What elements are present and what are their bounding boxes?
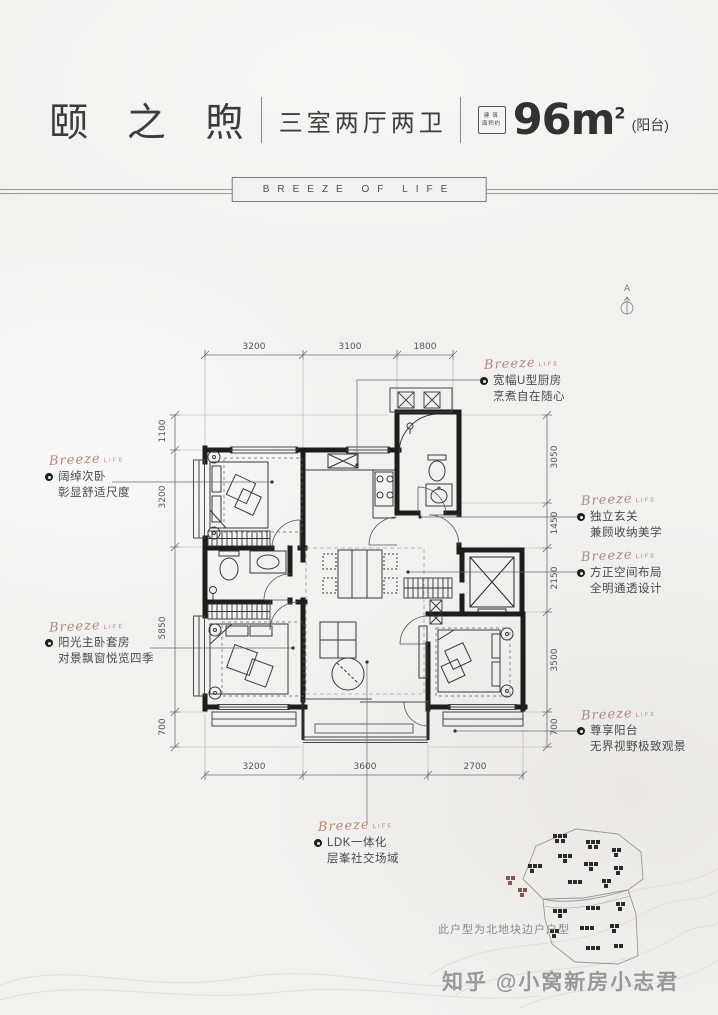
master-furniture [209,622,304,699]
flourish-script: BreezeLIFE [318,816,400,837]
compass-label: A [624,284,630,294]
flourish-script: BreezeLIFE [49,450,131,471]
annotation-ldk: BreezeLIFE LDK一体化 层峯社交场域 [314,818,399,866]
flourish-script: BreezeLIFE [581,703,687,725]
dim-right-1: 3050 [550,437,560,477]
dim-left-4: 700 [158,707,168,747]
windows [194,447,524,743]
dim-top-2: 3100 [335,342,365,352]
dim-left-2: 3200 [158,477,168,517]
dim-left-3: 5850 [158,608,168,648]
lamp-icon [501,685,513,697]
flourish-script: BreezeLIFE [581,490,663,511]
wardrobes [208,531,452,624]
dim-bottom-1: 3200 [239,762,269,772]
flourish-script: BreezeLIFE [49,615,155,637]
bed-icon [438,630,500,692]
drain-icon [210,587,217,594]
bathroom2-fixtures [210,551,287,600]
dim-right-5: 700 [550,707,560,747]
lamp-icon [209,624,221,636]
dim-right-3: 2150 [550,558,560,598]
floorplan-poster: { "header": { "title": "颐 之 煦", "subtitl… [0,0,718,1015]
bedroom3-furniture [436,628,513,697]
dim-left-1: 1100 [158,411,168,451]
flourish-script: BreezeLIFE [484,354,566,375]
dim-bottom-2: 3600 [350,762,380,772]
lamp-icon [208,451,220,463]
bullet-icon [45,473,53,481]
site-plan-caption: 此户型为北地块边户户型 [438,921,570,937]
highlighted-buildings [506,876,527,897]
bed-icon [210,624,288,694]
annotation-bedroom2: BreezeLIFE 阔绰次卧 彰显舒适尺度 [45,452,130,500]
lamp-icon [209,687,221,699]
dim-right-4: 3500 [550,640,560,680]
bullet-icon [577,569,585,577]
toilet-icon [219,551,239,556]
dim-top-1: 3200 [239,342,269,352]
bullet-icon [45,639,53,647]
compass-icon [621,297,633,314]
dining-table-icon [338,550,382,598]
watermark: 知乎 @小窝新房小志君 [442,966,679,996]
dimension-lines [170,350,552,780]
annotation-kitchen: BreezeLIFE 宽幅U型厨房 烹煮自在随心 [480,356,565,404]
annotation-balcony: BreezeLIFE 尊享阳台 无界视野极致观景 [577,706,686,754]
kitchen-fixtures [305,454,395,518]
dining-living-furniture [306,548,427,694]
bullet-icon [577,513,585,521]
bed-icon [210,462,268,528]
flourish-script: BreezeLIFE [581,546,663,567]
balcony-details [315,702,428,733]
annotation-layout: BreezeLIFE 方正空间布局 全明通透设计 [577,548,662,596]
dim-right-2: 1450 [550,503,560,543]
bedroom2-furniture [208,451,302,539]
lamp-icon [208,527,220,539]
annotation-master: BreezeLIFE 阳光主卧套房 对景飘窗悦览四季 [45,618,154,666]
balcony-walls [303,700,428,740]
dim-bottom-3: 2700 [460,762,490,772]
leader-lines [112,380,583,822]
elevator-shaft [470,557,514,613]
annotation-entry: BreezeLIFE 独立玄关 兼顾收纳美学 [577,492,662,540]
dim-top-3: 1800 [410,342,440,352]
bullet-icon [480,377,488,385]
washbasin-icon [250,551,286,573]
toilet-icon [428,455,446,460]
bullet-icon [314,839,322,847]
equipment-platform [390,388,452,412]
lamp-icon [501,628,513,640]
shower-icon [399,414,437,452]
bullet-icon [577,727,585,735]
bathroom1-fixtures [399,414,452,506]
site-plan [506,829,643,964]
